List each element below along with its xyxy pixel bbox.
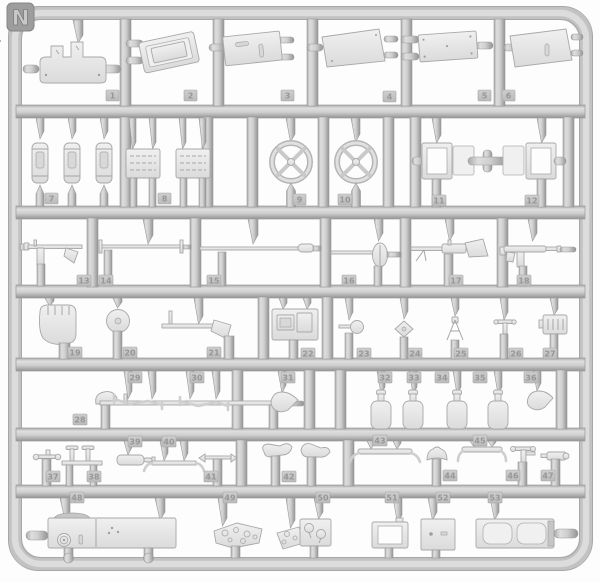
part-53-shape bbox=[476, 498, 578, 548]
svg-text:47: 47 bbox=[542, 472, 553, 481]
svg-text:15: 15 bbox=[208, 277, 220, 286]
svg-text:1: 1 bbox=[110, 92, 116, 101]
part-tag-10: 10 bbox=[338, 194, 352, 205]
part-tag-42: 42 bbox=[282, 471, 296, 482]
svg-text:35: 35 bbox=[474, 374, 486, 383]
svg-text:44: 44 bbox=[444, 472, 456, 481]
svg-text:29: 29 bbox=[129, 374, 141, 383]
part-tag-15: 15 bbox=[207, 275, 221, 286]
svg-text:41: 41 bbox=[205, 473, 217, 482]
svg-text:5: 5 bbox=[482, 92, 488, 101]
part-tag-33: 33 bbox=[407, 372, 421, 383]
part-2-shape bbox=[126, 31, 200, 73]
row-7 bbox=[26, 498, 578, 563]
part-tag-52: 52 bbox=[436, 492, 450, 503]
svg-text:50: 50 bbox=[317, 494, 329, 503]
svg-text:45: 45 bbox=[474, 437, 486, 446]
svg-text:36: 36 bbox=[525, 374, 537, 383]
part-tag-41: 41 bbox=[204, 471, 218, 482]
part-tag-26: 26 bbox=[509, 348, 523, 359]
svg-text:43: 43 bbox=[374, 437, 385, 446]
svg-text:40: 40 bbox=[163, 438, 175, 447]
svg-text:8: 8 bbox=[162, 195, 168, 204]
svg-text:26: 26 bbox=[510, 350, 522, 359]
part-tag-35: 35 bbox=[473, 372, 487, 383]
svg-text:25: 25 bbox=[455, 350, 467, 359]
part-tag-48: 48 bbox=[70, 492, 84, 503]
part-tag-39: 39 bbox=[128, 436, 142, 447]
svg-text:21: 21 bbox=[208, 349, 220, 358]
part-tag-24: 24 bbox=[408, 348, 422, 359]
svg-text:11: 11 bbox=[433, 197, 445, 206]
part-10-shape bbox=[337, 118, 375, 207]
part-tag-30: 30 bbox=[190, 372, 204, 383]
part-tag-34: 34 bbox=[435, 372, 449, 383]
part-tag-20: 20 bbox=[123, 347, 137, 358]
part-7-shape bbox=[32, 118, 112, 206]
svg-text:17: 17 bbox=[450, 277, 461, 286]
svg-text:18: 18 bbox=[518, 277, 530, 286]
part-tag-12: 12 bbox=[525, 195, 539, 206]
svg-text:33: 33 bbox=[408, 374, 419, 383]
part-16-shape bbox=[331, 219, 401, 286]
svg-text:6: 6 bbox=[506, 92, 512, 101]
part-tag-8: 8 bbox=[158, 193, 171, 204]
part-tag-37: 37 bbox=[46, 471, 60, 482]
svg-text:30: 30 bbox=[191, 374, 203, 383]
part-tag-9: 9 bbox=[293, 194, 306, 205]
svg-text:42: 42 bbox=[283, 473, 294, 482]
part-1-shape bbox=[23, 20, 121, 83]
svg-text:32: 32 bbox=[379, 374, 390, 383]
part-tag-43: 43 bbox=[373, 435, 387, 446]
svg-text:19: 19 bbox=[69, 349, 81, 358]
svg-text:20: 20 bbox=[124, 349, 136, 358]
svg-text:37: 37 bbox=[47, 473, 58, 482]
part-tag-17: 17 bbox=[449, 275, 463, 286]
part-13-shape bbox=[20, 240, 82, 286]
part-49-shape bbox=[214, 498, 304, 558]
svg-text:28: 28 bbox=[74, 416, 86, 425]
part-tag-2: 2 bbox=[184, 90, 197, 101]
part-tag-49: 49 bbox=[223, 492, 237, 503]
part-6-shape bbox=[504, 29, 583, 67]
part-tag-16: 16 bbox=[342, 275, 356, 286]
part-18-shape bbox=[500, 219, 576, 286]
svg-text:22: 22 bbox=[302, 350, 313, 359]
part-tag-31: 31 bbox=[281, 372, 295, 383]
svg-text:34: 34 bbox=[436, 374, 448, 383]
part-tag-28: 28 bbox=[73, 414, 87, 425]
svg-text:31: 31 bbox=[282, 374, 294, 383]
part-52-shape bbox=[421, 498, 455, 558]
sprue-sheet: 1 2 3 4 5 6 7 8 9 10 11 12 13 14 15 16 1… bbox=[0, 0, 600, 582]
part-tag-45: 45 bbox=[473, 435, 487, 446]
svg-text:12: 12 bbox=[526, 197, 537, 206]
part-tag-3: 3 bbox=[281, 90, 294, 101]
sprue-label: N bbox=[12, 6, 30, 30]
part-9-shape bbox=[272, 118, 310, 207]
part-tag-19: 19 bbox=[68, 347, 82, 358]
part-tag-1: 1 bbox=[106, 90, 119, 101]
part-5-shape bbox=[401, 31, 493, 62]
svg-text:23: 23 bbox=[358, 350, 369, 359]
part-tag-13: 13 bbox=[77, 275, 91, 286]
svg-text:46: 46 bbox=[507, 472, 519, 481]
part-tag-23: 23 bbox=[357, 348, 371, 359]
part-tag-27: 27 bbox=[543, 348, 557, 359]
part-tag-32: 32 bbox=[378, 372, 392, 383]
part-tag-50: 50 bbox=[316, 492, 330, 503]
part-tag-18: 18 bbox=[517, 275, 531, 286]
sprue-label-tab: N bbox=[7, 3, 34, 31]
svg-text:9: 9 bbox=[297, 196, 303, 205]
svg-text:10: 10 bbox=[339, 196, 351, 205]
part-50-shape bbox=[300, 498, 331, 558]
part-tag-4: 4 bbox=[383, 91, 396, 102]
svg-text:24: 24 bbox=[409, 350, 421, 359]
svg-text:4: 4 bbox=[387, 93, 393, 102]
part-21-shape bbox=[162, 298, 234, 359]
svg-text:52: 52 bbox=[437, 494, 448, 503]
svg-text:7: 7 bbox=[49, 195, 55, 204]
part-51-shape bbox=[372, 498, 408, 558]
svg-text:14: 14 bbox=[100, 277, 112, 286]
svg-text:48: 48 bbox=[71, 494, 83, 503]
part-tag-36: 36 bbox=[524, 372, 538, 383]
sprue-page: 1 2 3 4 5 6 7 8 9 10 11 12 13 14 15 16 1… bbox=[0, 0, 600, 582]
svg-text:2: 2 bbox=[188, 92, 194, 101]
part-42-shape bbox=[263, 444, 330, 486]
part-tag-44: 44 bbox=[443, 470, 457, 481]
part-tag-47: 47 bbox=[541, 470, 555, 481]
part-tag-53: 53 bbox=[488, 492, 502, 503]
part-tag-51: 51 bbox=[385, 492, 399, 503]
part-tag-7: 7 bbox=[45, 193, 58, 204]
part-35-shape bbox=[488, 371, 508, 429]
row-6 bbox=[33, 440, 569, 486]
svg-text:27: 27 bbox=[544, 350, 555, 359]
part-tag-14: 14 bbox=[99, 275, 113, 286]
part-tag-21: 21 bbox=[207, 347, 221, 358]
svg-text:13: 13 bbox=[78, 277, 89, 286]
part-tag-6: 6 bbox=[502, 90, 515, 101]
row-5 bbox=[96, 370, 567, 429]
part-48-shape bbox=[26, 498, 176, 563]
part-34-shape bbox=[447, 371, 467, 429]
svg-text:49: 49 bbox=[224, 494, 236, 503]
svg-text:51: 51 bbox=[386, 494, 398, 503]
svg-text:38: 38 bbox=[88, 473, 100, 482]
svg-text:3: 3 bbox=[285, 92, 291, 101]
part-tag-40: 40 bbox=[162, 436, 176, 447]
part-12-shape bbox=[503, 118, 566, 207]
part-tag-11: 11 bbox=[432, 195, 446, 206]
svg-text:53: 53 bbox=[489, 494, 500, 503]
part-tag-25: 25 bbox=[454, 348, 468, 359]
svg-text:39: 39 bbox=[129, 438, 141, 447]
part-tag-5: 5 bbox=[478, 90, 491, 101]
svg-text:16: 16 bbox=[343, 277, 355, 286]
part-tag-29: 29 bbox=[128, 372, 142, 383]
part-tag-46: 46 bbox=[506, 470, 520, 481]
part-tag-22: 22 bbox=[301, 348, 315, 359]
row-2 bbox=[32, 117, 574, 207]
part-tag-38: 38 bbox=[87, 471, 101, 482]
